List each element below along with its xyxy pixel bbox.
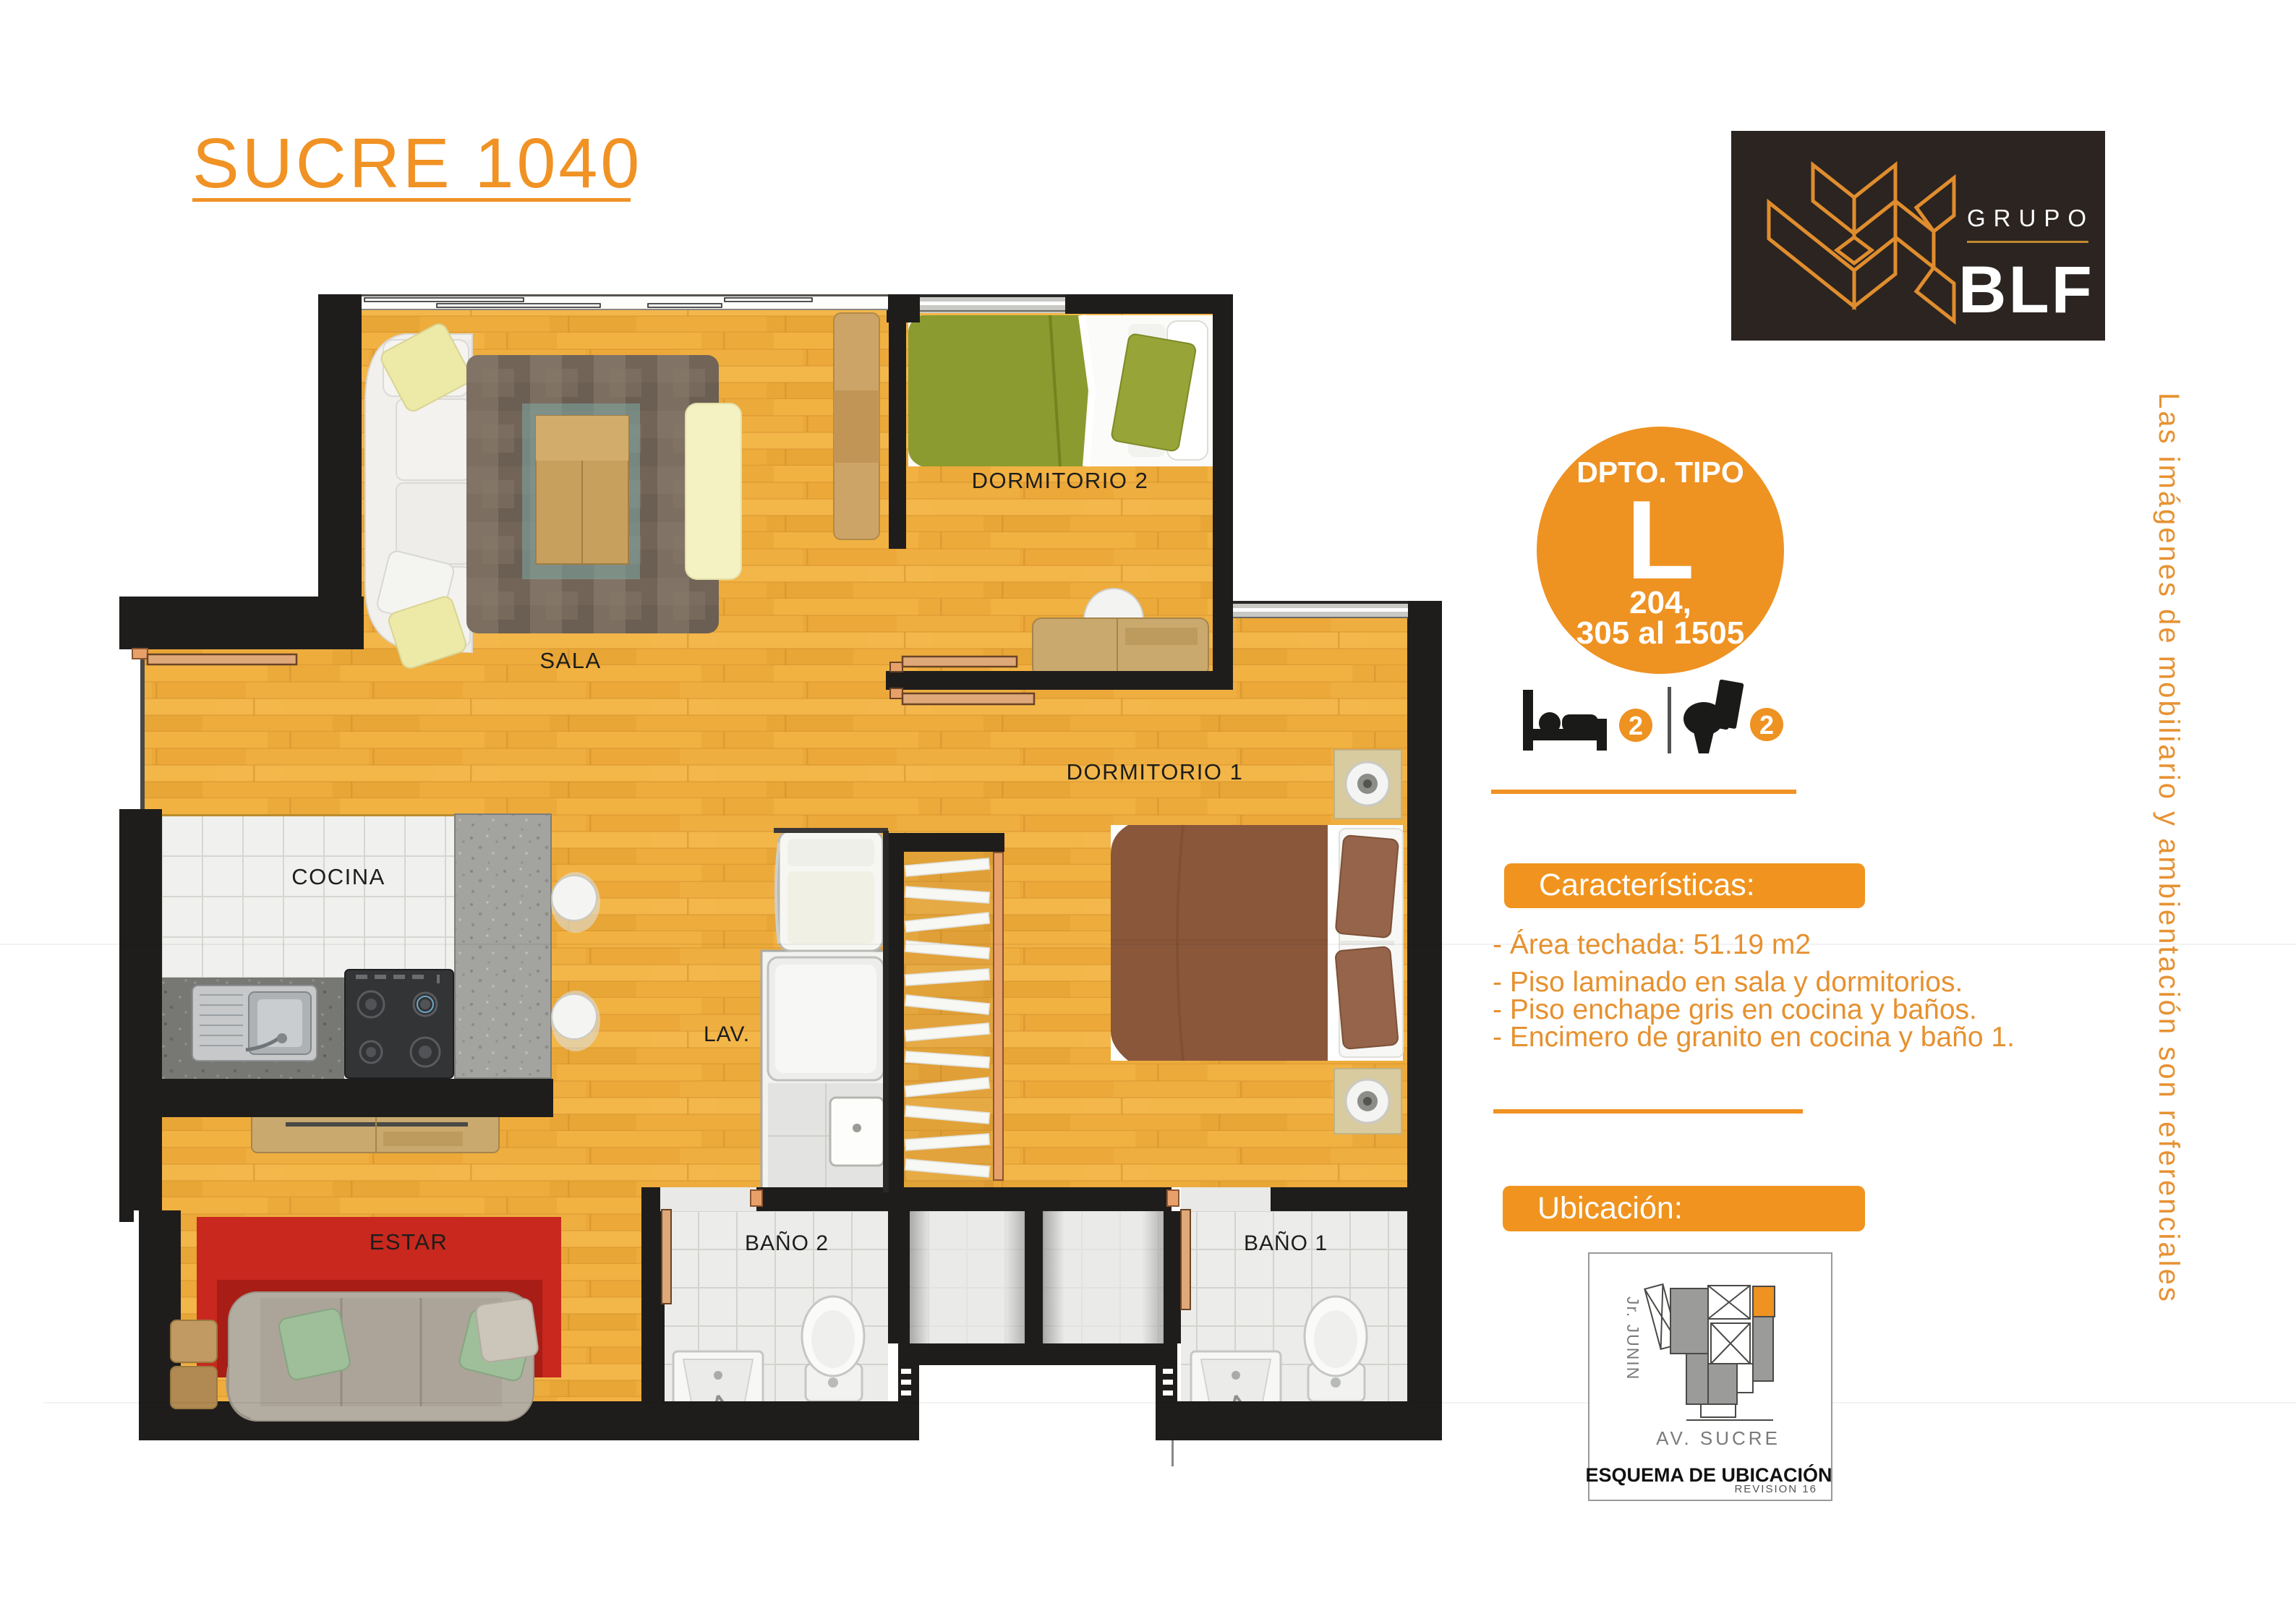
svg-text:DORMITORIO 2: DORMITORIO 2 xyxy=(972,468,1149,493)
svg-text:305 al 1505: 305 al 1505 xyxy=(1576,615,1744,651)
svg-text:Jr. JUNIN: Jr. JUNIN xyxy=(1623,1296,1642,1380)
svg-text:BAÑO 2: BAÑO 2 xyxy=(745,1231,829,1255)
svg-text:ESTAR: ESTAR xyxy=(370,1229,448,1255)
svg-text:L: L xyxy=(1626,477,1695,602)
svg-text:SALA: SALA xyxy=(539,648,601,673)
svg-text:COCINA: COCINA xyxy=(291,864,385,889)
svg-text:- Piso laminado en sala y dorm: - Piso laminado en sala y dormitorios. xyxy=(1493,967,1963,998)
svg-text:REVISION 16: REVISION 16 xyxy=(1734,1483,1817,1495)
svg-text:- Piso enchape gris en cocina: - Piso enchape gris en cocina y baños. xyxy=(1493,994,1977,1025)
svg-text:AV. SUCRE: AV. SUCRE xyxy=(1656,1427,1780,1449)
svg-text:LAV.: LAV. xyxy=(704,1022,750,1046)
svg-text:2: 2 xyxy=(1759,710,1774,740)
svg-text:GRUPO: GRUPO xyxy=(1967,205,2094,231)
svg-text:2: 2 xyxy=(1629,711,1643,740)
svg-text:Las imágenes de mobiliario y a: Las imágenes de mobiliario y ambientació… xyxy=(2153,393,2185,1304)
svg-text:Características:: Características: xyxy=(1539,868,1755,902)
svg-text:SUCRE 1040: SUCRE 1040 xyxy=(192,124,642,202)
svg-text:Ubicación:: Ubicación: xyxy=(1537,1191,1683,1226)
svg-text:DORMITORIO 1: DORMITORIO 1 xyxy=(1067,759,1244,785)
svg-text:- Área techada: 51.19 m2: - Área techada: 51.19 m2 xyxy=(1493,929,1811,960)
svg-text:BAÑO 1: BAÑO 1 xyxy=(1244,1231,1328,1255)
svg-text:- Encimero de granito en cocin: - Encimero de granito en cocina y baño 1… xyxy=(1493,1022,2015,1053)
svg-text:BLF: BLF xyxy=(1958,253,2094,327)
